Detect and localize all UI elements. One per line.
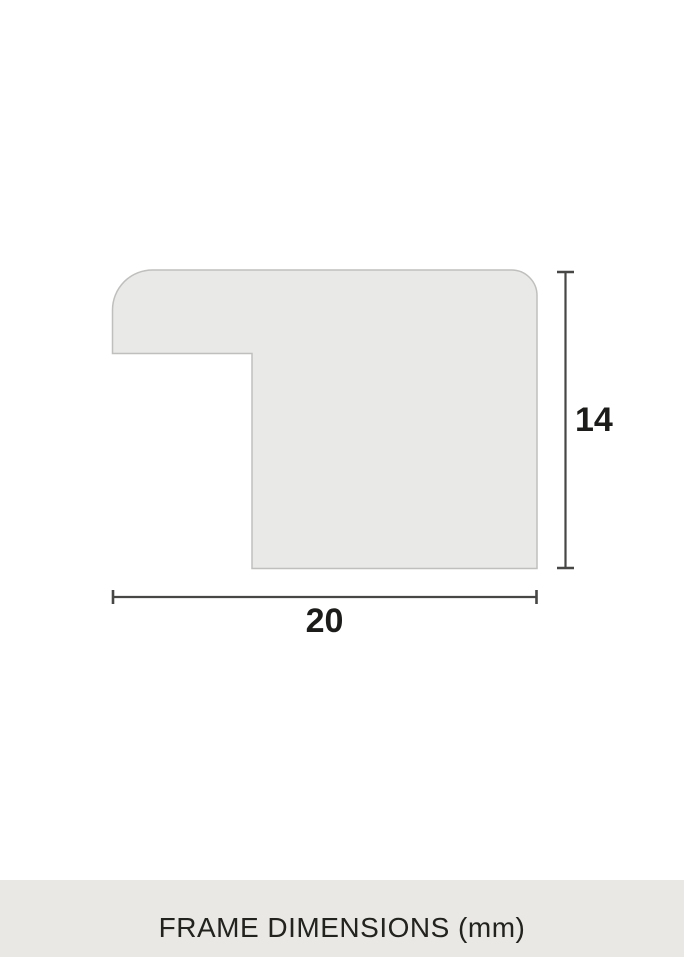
frame-profile-shape [113, 270, 538, 569]
height-dimension-label: 14 [575, 403, 613, 437]
footer-bar: FRAME DIMENSIONS (mm) [0, 880, 684, 957]
footer-caption: FRAME DIMENSIONS (mm) [0, 914, 684, 942]
profile-drawing [0, 0, 684, 660]
height-dimension [557, 272, 574, 568]
frame-dimensions-screenshot: 14 20 FRAME DIMENSIONS (mm) [0, 0, 684, 957]
width-dimension-label: 20 [279, 604, 370, 638]
frame-profile-diagram: 14 20 [0, 0, 684, 660]
